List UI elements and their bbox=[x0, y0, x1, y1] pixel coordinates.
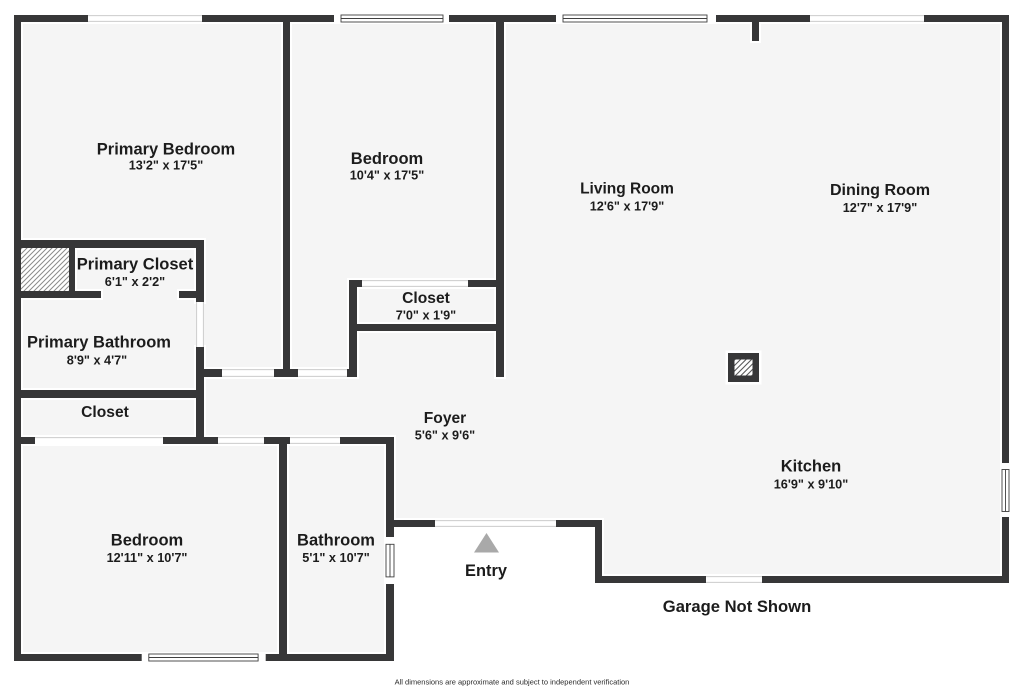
svg-text:Kitchen: Kitchen bbox=[781, 458, 842, 476]
svg-text:12'7" x 17'9": 12'7" x 17'9" bbox=[843, 201, 918, 215]
svg-text:Living Room: Living Room bbox=[580, 181, 674, 198]
svg-text:6'1" x 2'2": 6'1" x 2'2" bbox=[105, 275, 165, 289]
svg-text:Primary Bedroom: Primary Bedroom bbox=[97, 141, 235, 159]
svg-text:Bedroom: Bedroom bbox=[111, 532, 183, 550]
svg-text:10'4" x 17'5": 10'4" x 17'5" bbox=[350, 169, 425, 183]
svg-text:7'0" x 1'9": 7'0" x 1'9" bbox=[396, 309, 456, 323]
svg-text:5'6" x 9'6": 5'6" x 9'6" bbox=[415, 429, 475, 443]
svg-text:Closet: Closet bbox=[402, 290, 450, 307]
svg-text:Dining Room: Dining Room bbox=[830, 181, 930, 199]
svg-text:Closet: Closet bbox=[81, 404, 129, 421]
svg-text:13'2" x 17'5": 13'2" x 17'5" bbox=[129, 159, 204, 173]
svg-text:All dimensions are approximate: All dimensions are approximate and subje… bbox=[395, 678, 630, 687]
svg-text:Primary Bathroom: Primary Bathroom bbox=[27, 334, 171, 352]
svg-text:5'1" x 10'7": 5'1" x 10'7" bbox=[302, 551, 369, 565]
svg-text:Bedroom: Bedroom bbox=[351, 150, 423, 168]
svg-text:Bathroom: Bathroom bbox=[297, 532, 375, 550]
svg-text:Foyer: Foyer bbox=[424, 410, 466, 427]
svg-text:Garage Not Shown: Garage Not Shown bbox=[663, 597, 811, 616]
svg-text:16'9" x 9'10": 16'9" x 9'10" bbox=[774, 478, 849, 492]
svg-text:8'9" x 4'7": 8'9" x 4'7" bbox=[67, 354, 127, 368]
svg-text:Primary Closet: Primary Closet bbox=[77, 256, 194, 274]
svg-text:Entry: Entry bbox=[465, 562, 508, 580]
svg-text:12'11" x 10'7": 12'11" x 10'7" bbox=[107, 551, 188, 565]
svg-text:12'6" x 17'9": 12'6" x 17'9" bbox=[590, 200, 665, 214]
